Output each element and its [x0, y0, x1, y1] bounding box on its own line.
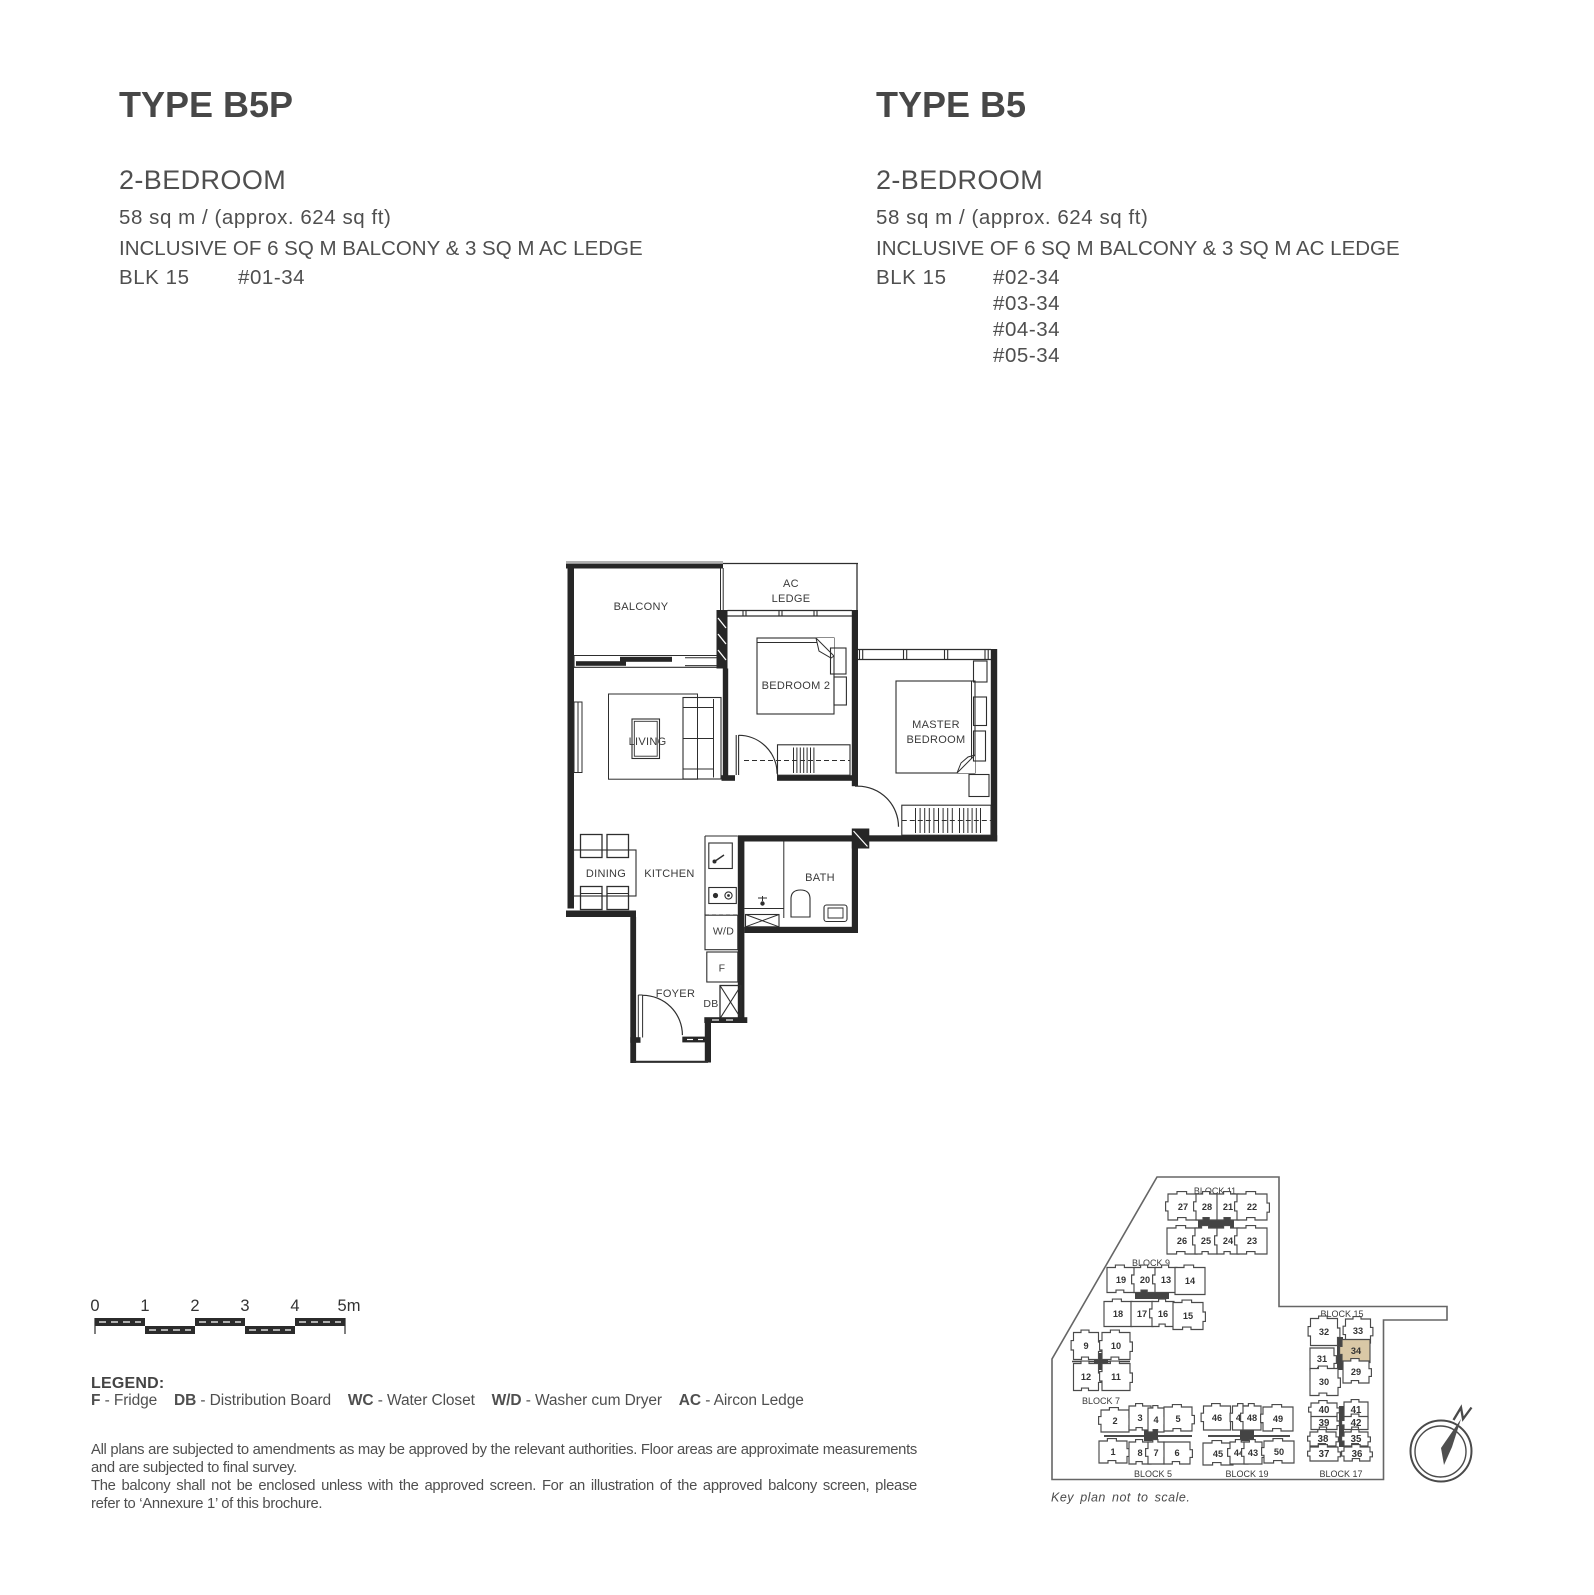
- svg-text:1: 1: [140, 1297, 149, 1315]
- svg-text:29: 29: [1351, 1367, 1361, 1377]
- svg-text:36: 36: [1352, 1449, 1363, 1460]
- svg-text:4: 4: [1153, 1415, 1159, 1425]
- svg-text:45: 45: [1213, 1449, 1223, 1459]
- svg-text:Key plan not to scale.: Key plan not to scale.: [1051, 1491, 1190, 1505]
- svg-text:MASTER: MASTER: [912, 719, 960, 731]
- svg-text:18: 18: [1113, 1309, 1123, 1319]
- svg-text:49: 49: [1273, 1414, 1283, 1424]
- svg-text:6: 6: [1174, 1448, 1179, 1458]
- svg-text:37: 37: [1319, 1449, 1330, 1460]
- svg-text:8: 8: [1137, 1448, 1142, 1458]
- svg-text:0: 0: [90, 1297, 99, 1315]
- svg-text:31: 31: [1317, 1354, 1327, 1364]
- svg-text:4: 4: [290, 1297, 299, 1315]
- svg-text:9: 9: [1083, 1341, 1088, 1351]
- svg-text:BEDROOM 2: BEDROOM 2: [762, 680, 831, 692]
- svg-text:5m: 5m: [338, 1297, 361, 1315]
- svg-text:AC: AC: [783, 578, 799, 590]
- svg-text:34: 34: [1351, 1346, 1362, 1356]
- svg-text:BEDROOM: BEDROOM: [907, 734, 966, 746]
- svg-text:3: 3: [1137, 1413, 1142, 1423]
- svg-text:23: 23: [1247, 1236, 1257, 1246]
- svg-text:50: 50: [1274, 1447, 1284, 1457]
- svg-text:39: 39: [1319, 1418, 1330, 1429]
- svg-text:2: 2: [190, 1297, 199, 1315]
- svg-text:25: 25: [1201, 1236, 1211, 1246]
- svg-text:10: 10: [1111, 1341, 1121, 1351]
- svg-text:42: 42: [1351, 1418, 1362, 1429]
- svg-text:DB: DB: [703, 998, 718, 1010]
- svg-text:7: 7: [1153, 1448, 1158, 1458]
- svg-text:11: 11: [1111, 1372, 1121, 1382]
- svg-text:46: 46: [1212, 1413, 1222, 1423]
- svg-text:21: 21: [1223, 1202, 1233, 1212]
- svg-text:W/D: W/D: [713, 926, 734, 938]
- svg-text:14: 14: [1185, 1276, 1196, 1286]
- svg-text:2: 2: [1112, 1416, 1117, 1426]
- svg-text:35: 35: [1351, 1434, 1362, 1445]
- svg-text:5: 5: [1175, 1414, 1180, 1424]
- svg-text:30: 30: [1319, 1377, 1329, 1387]
- svg-text:20: 20: [1140, 1275, 1150, 1285]
- svg-text:32: 32: [1319, 1327, 1329, 1337]
- svg-text:19: 19: [1116, 1275, 1126, 1285]
- svg-text:1: 1: [1110, 1447, 1115, 1457]
- svg-text:BATH: BATH: [805, 872, 835, 884]
- svg-text:LEDGE: LEDGE: [772, 593, 811, 605]
- svg-text:BALCONY: BALCONY: [614, 601, 669, 613]
- svg-text:48: 48: [1247, 1413, 1257, 1423]
- svg-text:FOYER: FOYER: [656, 988, 695, 1000]
- svg-text:BLOCK 19: BLOCK 19: [1225, 1469, 1268, 1479]
- svg-text:28: 28: [1202, 1202, 1212, 1212]
- svg-text:24: 24: [1223, 1236, 1234, 1246]
- svg-text:3: 3: [240, 1297, 249, 1315]
- svg-text:BLOCK 5: BLOCK 5: [1134, 1469, 1172, 1479]
- svg-text:13: 13: [1161, 1275, 1171, 1285]
- svg-text:33: 33: [1353, 1326, 1363, 1336]
- svg-text:22: 22: [1247, 1202, 1257, 1212]
- svg-text:LIVING: LIVING: [629, 736, 667, 748]
- svg-text:BLOCK 17: BLOCK 17: [1319, 1469, 1362, 1479]
- svg-text:27: 27: [1178, 1202, 1188, 1212]
- svg-text:17: 17: [1137, 1309, 1147, 1319]
- svg-text:F: F: [719, 963, 726, 975]
- svg-text:KITCHEN: KITCHEN: [644, 868, 694, 880]
- svg-text:16: 16: [1158, 1309, 1168, 1319]
- svg-text:DINING: DINING: [586, 868, 626, 880]
- svg-text:15: 15: [1183, 1311, 1193, 1321]
- svg-text:38: 38: [1318, 1434, 1329, 1445]
- svg-text:43: 43: [1248, 1448, 1258, 1458]
- svg-text:BLOCK 7: BLOCK 7: [1082, 1396, 1120, 1406]
- svg-text:40: 40: [1319, 1405, 1330, 1416]
- svg-text:12: 12: [1081, 1372, 1091, 1382]
- svg-text:26: 26: [1177, 1236, 1187, 1246]
